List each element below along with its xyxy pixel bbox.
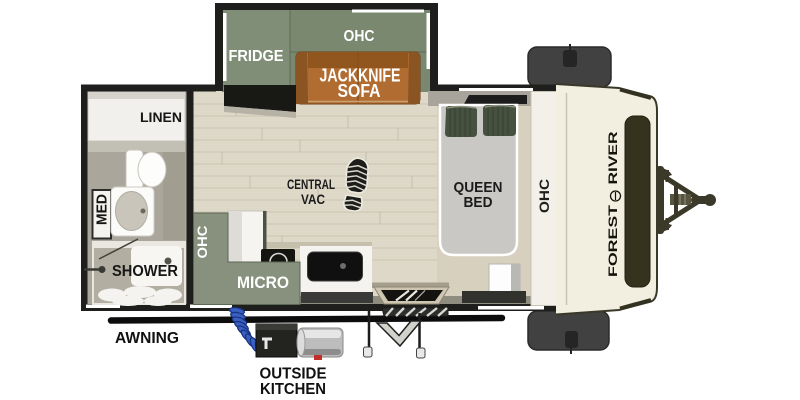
- svg-text:BED: BED: [464, 194, 493, 211]
- svg-text:FOREST: FOREST: [608, 205, 620, 277]
- svg-text:OHC: OHC: [344, 28, 375, 45]
- svg-text:MICRO: MICRO: [237, 274, 289, 292]
- svg-text:OHC: OHC: [536, 179, 552, 213]
- svg-text:VAC: VAC: [301, 192, 325, 207]
- svg-text:OHC: OHC: [194, 226, 210, 259]
- svg-text:KITCHEN: KITCHEN: [260, 381, 326, 398]
- svg-text:SHOWER: SHOWER: [112, 263, 178, 280]
- svg-text:OUTSIDE: OUTSIDE: [260, 366, 327, 383]
- svg-text:RIVER: RIVER: [608, 130, 620, 184]
- svg-text:MED: MED: [94, 194, 111, 225]
- svg-text:CENTRAL: CENTRAL: [287, 177, 335, 192]
- svg-text:LINEN: LINEN: [140, 109, 182, 125]
- svg-text:AWNING: AWNING: [115, 330, 179, 347]
- svg-text:SOFA: SOFA: [338, 80, 381, 101]
- svg-text:FRIDGE: FRIDGE: [229, 48, 284, 65]
